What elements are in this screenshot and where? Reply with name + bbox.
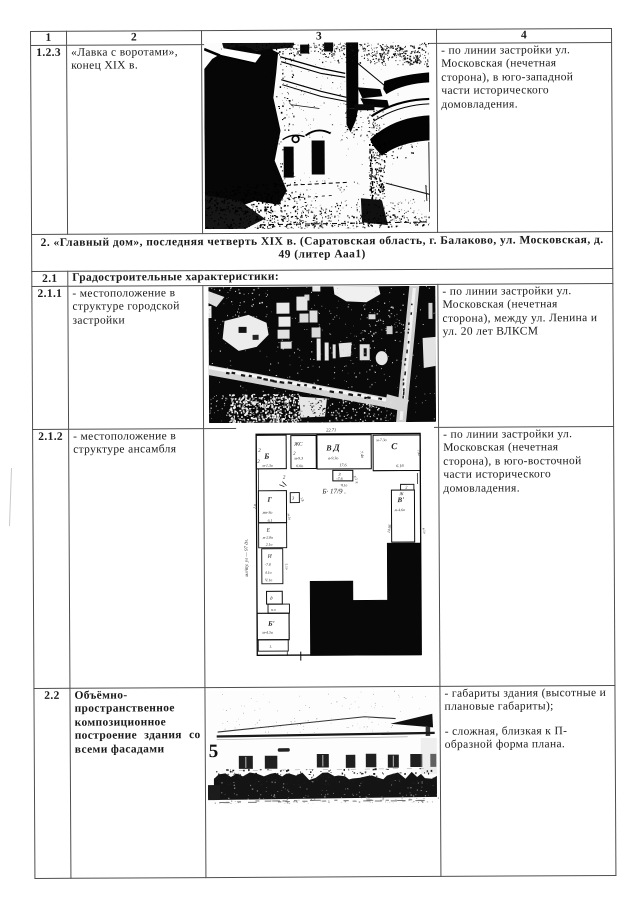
svg-text:м-4.5о: м-4.5о [261,630,273,635]
svg-text:м-1.3о: м-1.3о [261,464,272,468]
svg-text:мн-3о: мн-3о [262,510,273,515]
svg-text:м.о: м.о [270,608,276,612]
svg-text:В Д: В Д [325,442,340,452]
svg-text:2.1о: 2.1о [266,543,273,547]
svg-text:Е: Е [266,528,271,534]
svg-text:Ч.1о: Ч.1о [265,578,272,582]
svg-text:2: 2 [405,485,407,490]
svg-text:в-9.3о: в-9.3о [328,455,338,460]
svg-text:6.1: 6.1 [268,519,273,523]
svg-text:1.: 1. [269,645,272,649]
svg-text:5: 5 [209,741,219,762]
svg-text:6.1б: 6.1б [396,463,404,468]
svg-text:Ж: Ж [398,491,404,496]
svg-text:Г: Г [266,496,272,504]
svg-text:мл/ту. ул — 97 дл.: мл/ту. ул — 97 дл. [245,539,250,578]
svg-text:м-2.8о: м-2.8о [262,536,273,540]
svg-text:В': В' [396,496,404,504]
svg-text:22.71: 22.71 [326,427,336,432]
svg-text:17.6: 17.6 [339,462,347,467]
svg-text:Б· 17/9 .: Б· 17/9 . [321,487,346,495]
svg-text:ЖС: ЖС [293,442,303,448]
svg-text:-7.6: -7.6 [336,476,342,481]
svg-text:Б': Б' [267,620,274,628]
svg-text:м-4.6о: м-4.6о [394,508,405,512]
svg-text:-7.8: -7.8 [265,563,271,567]
svg-text:4.1о: 4.1о [265,571,272,575]
svg-text:Б: Б [263,452,269,461]
svg-text:С: С [391,441,398,451]
svg-text:6.6о: 6.6о [296,463,303,468]
svg-text:м-7.3о: м-7.3о [375,438,386,442]
svg-text:м-9.3: м-9.3 [293,456,303,461]
